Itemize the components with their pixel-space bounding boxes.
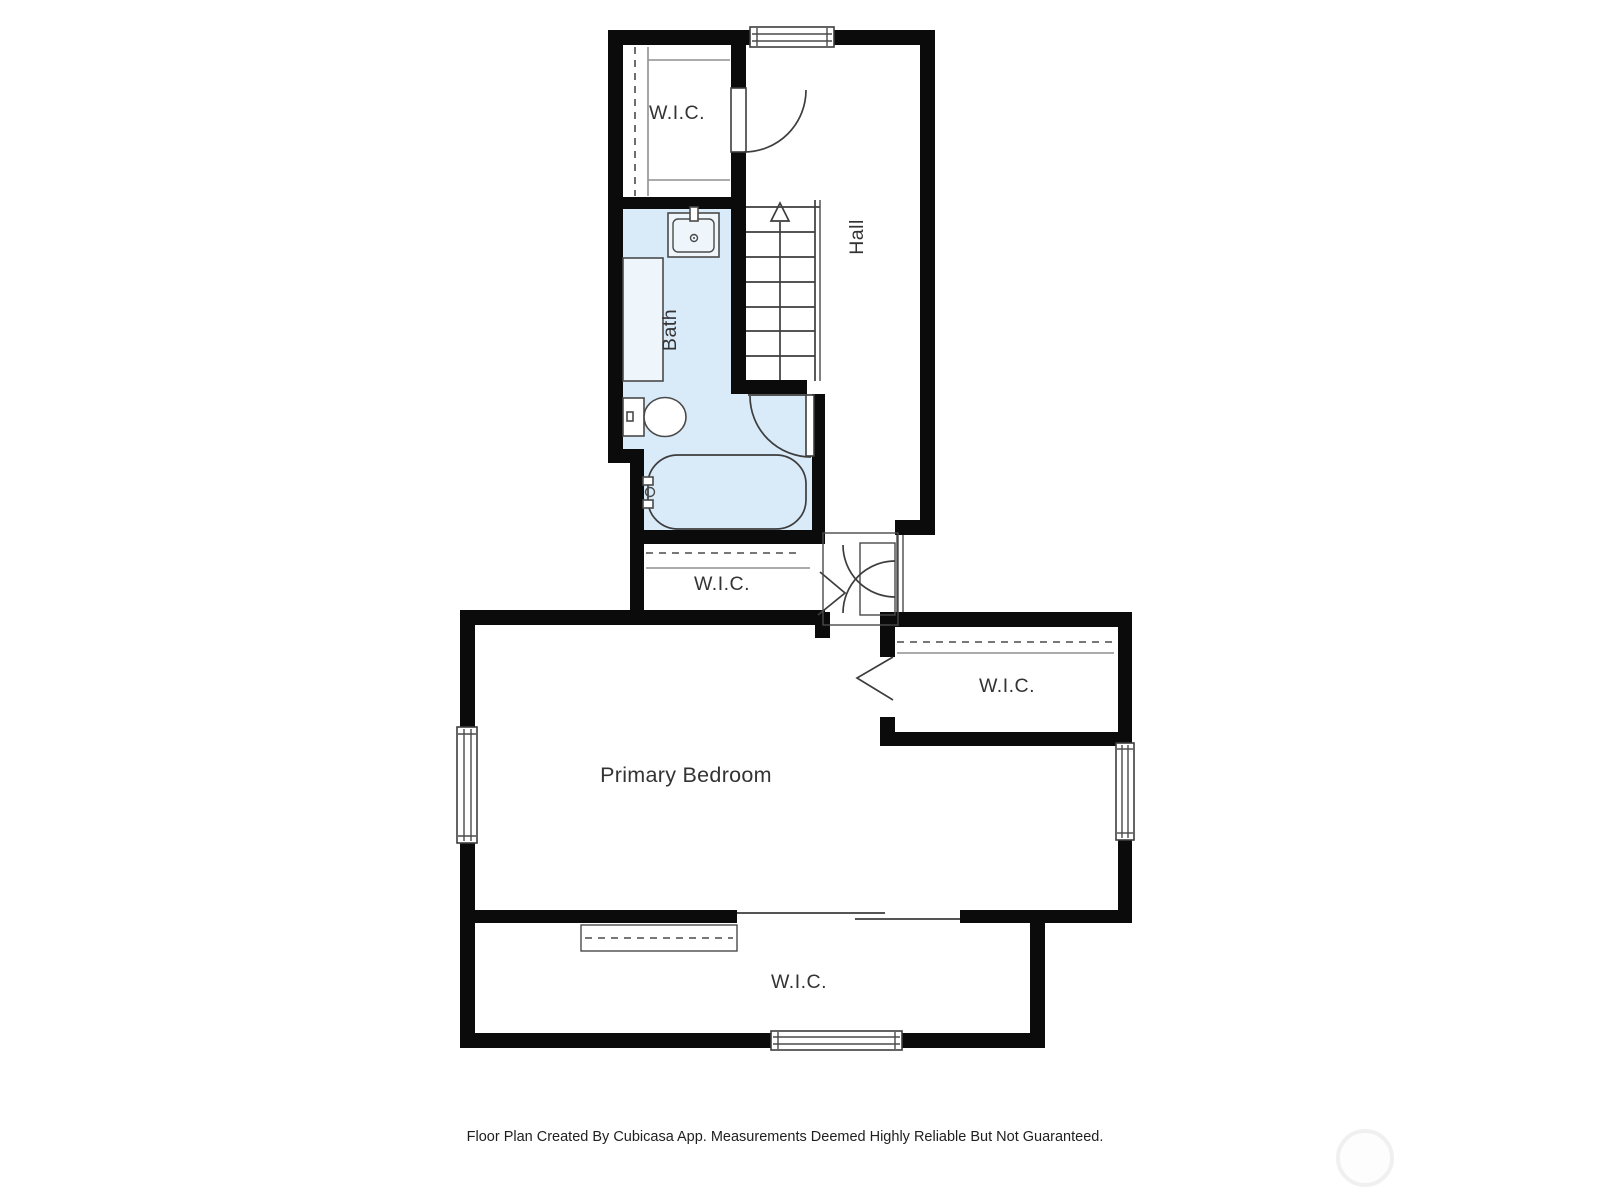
wall-stairs-bottom [731,380,807,394]
sink [668,207,719,257]
closet-wic-mid [646,553,810,568]
wall-wic-hall-upper [731,45,746,90]
floor-plan-page: W.I.C. Hall Bath W.I.C. W.I.C. Primary B… [0,0,1600,1200]
landing-door-arc-1 [843,545,895,597]
walls [460,30,1132,1048]
wall-wic-bath [608,197,746,209]
closet-rod-wic-bottom [581,925,737,951]
toilet [623,398,686,437]
door-wic-right-open [857,657,893,700]
wall-hall-bottom [895,520,935,535]
window-wicbottom [771,1031,902,1050]
door-sliding-bedroom-wic [737,913,960,919]
wall-right-hall [920,30,935,535]
wall-bath-stairs [731,209,746,394]
wall-bedroom-wic-partition-left [460,910,737,923]
room-label-bath: Bath [659,309,681,351]
landing [823,533,903,625]
window-bedroom-right [1116,743,1134,840]
wall-bedroom-top-right [895,612,1132,627]
stairs [746,200,820,381]
watermark-compass-icon [1338,1131,1392,1185]
room-label-wic-bottom: W.I.C. [771,971,827,993]
room-label-hall: Hall [846,219,868,255]
closet-wic-right [897,642,1114,653]
footer-disclaimer: Floor Plan Created By Cubicasa App. Meas… [467,1129,1104,1145]
room-label-wic-top: W.I.C. [649,102,705,124]
landing-door-leaf [860,543,895,615]
wall-left-bath-lower [630,449,644,544]
wall-wicbottom-right [1030,910,1045,1048]
room-label-wic-mid: W.I.C. [694,573,750,595]
vanity-counter [623,258,663,381]
door-wic-mid-open [818,572,845,615]
floor-plan-canvas: W.I.C. Hall Bath W.I.C. W.I.C. Primary B… [0,0,1600,1200]
room-label-wic-right: W.I.C. [979,675,1035,697]
landing-door-arc-2 [843,561,895,613]
wall-wicbottom-bottom [460,1033,1045,1048]
room-label-primary-bedroom: Primary Bedroom [600,763,772,787]
wall-left-upper [608,30,623,463]
window-bedroom-left [457,727,477,843]
door-wic-top [731,88,806,152]
wall-bedroom-wic-partition-right [960,910,1132,923]
stairs-up-arrow-icon [771,203,789,221]
wall-wicright-bottom [880,732,1132,746]
wall-bedroom-top-left [460,610,825,625]
wall-wicright-left-upper [880,612,895,657]
window-top [750,27,834,47]
wall-bath-bottom [630,530,825,544]
